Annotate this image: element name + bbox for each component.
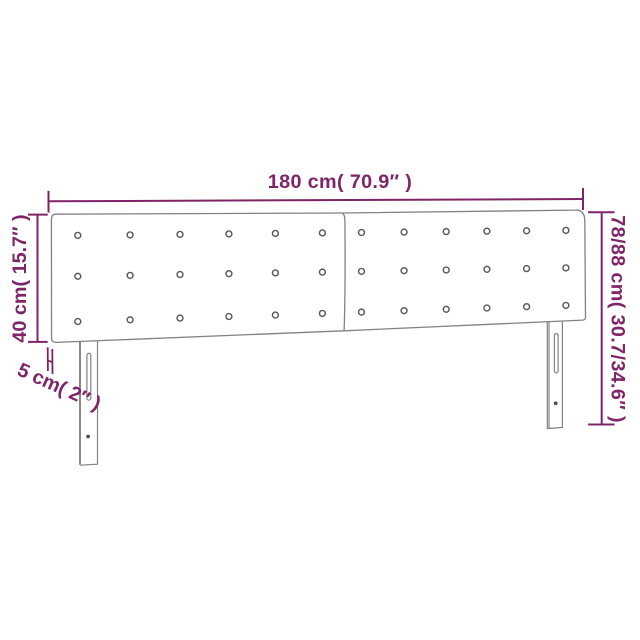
svg-text:180 cm( 70.9″ ): 180 cm( 70.9″ ) [268, 171, 412, 193]
svg-text:78/88 cm( 30.7/34.6″ ): 78/88 cm( 30.7/34.6″ ) [607, 215, 629, 423]
svg-text:40 cm( 15.7″ ): 40 cm( 15.7″ ) [9, 214, 31, 342]
